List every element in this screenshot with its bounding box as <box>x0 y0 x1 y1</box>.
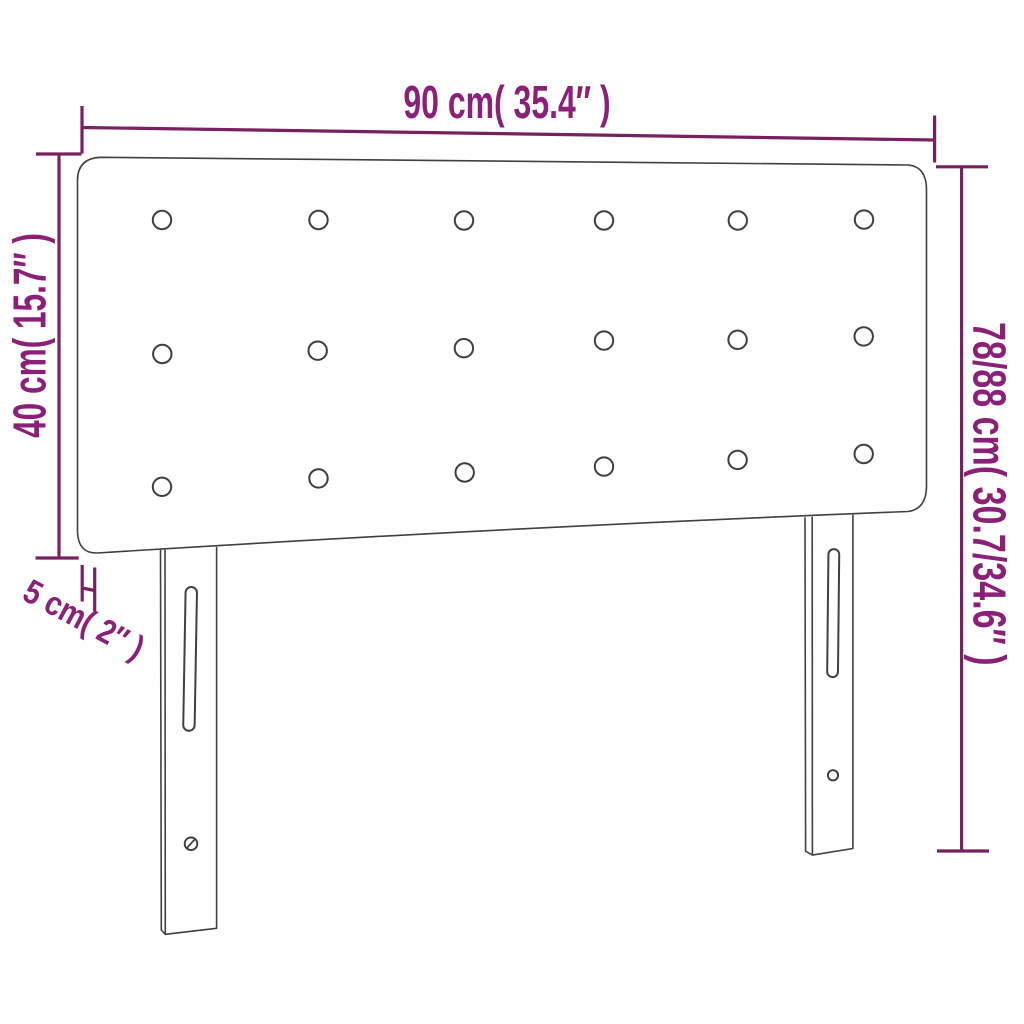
svg-text:90 cm( 35.4″ ): 90 cm( 35.4″ ) <box>403 77 610 128</box>
svg-text:78/88 cm( 30.7/34.6″ ): 78/88 cm( 30.7/34.6″ ) <box>963 322 1015 666</box>
svg-text:40 cm( 15.7″ ): 40 cm( 15.7″ ) <box>5 233 56 438</box>
